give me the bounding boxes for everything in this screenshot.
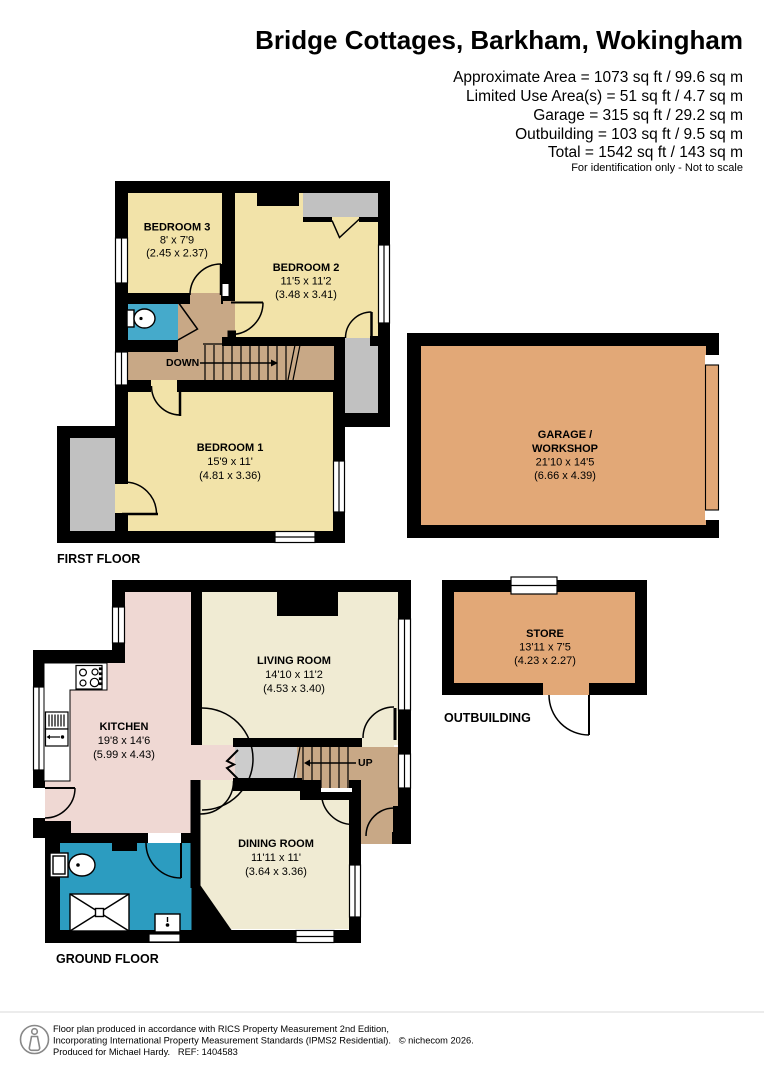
svg-text:(3.48 x 3.41): (3.48 x 3.41)	[275, 289, 337, 301]
svg-text:GARAGE /: GARAGE /	[538, 429, 592, 441]
svg-text:19'8 x 14'6: 19'8 x 14'6	[98, 735, 151, 747]
svg-text:Produced for Michael Hardy.: Produced for Michael Hardy. REF: 1404583	[53, 1047, 238, 1057]
svg-text:OUTBUILDING: OUTBUILDING	[444, 711, 531, 725]
svg-text:8' x 7'9: 8' x 7'9	[160, 235, 194, 247]
svg-text:21'10 x 14'5: 21'10 x 14'5	[536, 457, 595, 469]
svg-text:For identification only - Not: For identification only - Not to scale	[571, 162, 743, 174]
svg-text:DOWN: DOWN	[166, 357, 199, 369]
svg-text:13'11 x 7'5: 13'11 x 7'5	[519, 642, 571, 654]
svg-text:Floor plan produced in accorda: Floor plan produced in accordance with R…	[53, 1024, 389, 1034]
svg-text:11'11 x 11': 11'11 x 11'	[251, 852, 301, 864]
svg-text:14'10 x 11'2: 14'10 x 11'2	[265, 669, 323, 681]
svg-text:DINING ROOM: DINING ROOM	[238, 838, 314, 850]
svg-text:Incorporating International Pr: Incorporating International Property Mea…	[53, 1036, 474, 1046]
svg-text:(5.99 x 4.43): (5.99 x 4.43)	[93, 749, 155, 761]
svg-text:15'9 x 11': 15'9 x 11'	[207, 456, 253, 468]
svg-text:BEDROOM 2: BEDROOM 2	[273, 262, 340, 274]
svg-text:FIRST FLOOR: FIRST FLOOR	[57, 552, 140, 566]
svg-text:Total = 1542 sq ft / 143 sq m: Total = 1542 sq ft / 143 sq m	[548, 144, 743, 161]
svg-text:11'5 x 11'2: 11'5 x 11'2	[281, 276, 332, 288]
svg-text:(6.66 x 4.39): (6.66 x 4.39)	[534, 470, 596, 482]
svg-text:KITCHEN: KITCHEN	[100, 721, 149, 733]
svg-text:BEDROOM 1: BEDROOM 1	[197, 442, 264, 454]
svg-text:Outbuilding = 103 sq ft / 9.5: Outbuilding = 103 sq ft / 9.5 sq m	[515, 126, 743, 143]
svg-text:(2.45 x 2.37): (2.45 x 2.37)	[146, 248, 208, 260]
svg-text:UP: UP	[358, 757, 373, 769]
svg-text:(4.23 x 2.27): (4.23 x 2.27)	[514, 655, 576, 667]
svg-text:Garage = 315 sq ft / 29.2 sq m: Garage = 315 sq ft / 29.2 sq m	[533, 107, 743, 124]
svg-text:GROUND FLOOR: GROUND FLOOR	[56, 952, 159, 966]
svg-text:(3.64 x 3.36): (3.64 x 3.36)	[245, 866, 307, 878]
svg-text:(4.53 x 3.40): (4.53 x 3.40)	[263, 683, 325, 695]
svg-text:Bridge Cottages, Barkham, Woki: Bridge Cottages, Barkham, Wokingham	[255, 25, 743, 55]
svg-text:STORE: STORE	[526, 628, 564, 640]
svg-text:BEDROOM 3: BEDROOM 3	[144, 222, 211, 234]
svg-text:WORKSHOP: WORKSHOP	[532, 443, 598, 455]
svg-text:(4.81 x 3.36): (4.81 x 3.36)	[199, 470, 261, 482]
svg-text:LIVING ROOM: LIVING ROOM	[257, 655, 331, 667]
svg-text:Approximate Area = 1073 sq ft: Approximate Area = 1073 sq ft / 99.6 sq …	[453, 69, 743, 86]
svg-text:Limited Use Area(s) = 51 sq ft: Limited Use Area(s) = 51 sq ft / 4.7 sq …	[466, 88, 743, 105]
